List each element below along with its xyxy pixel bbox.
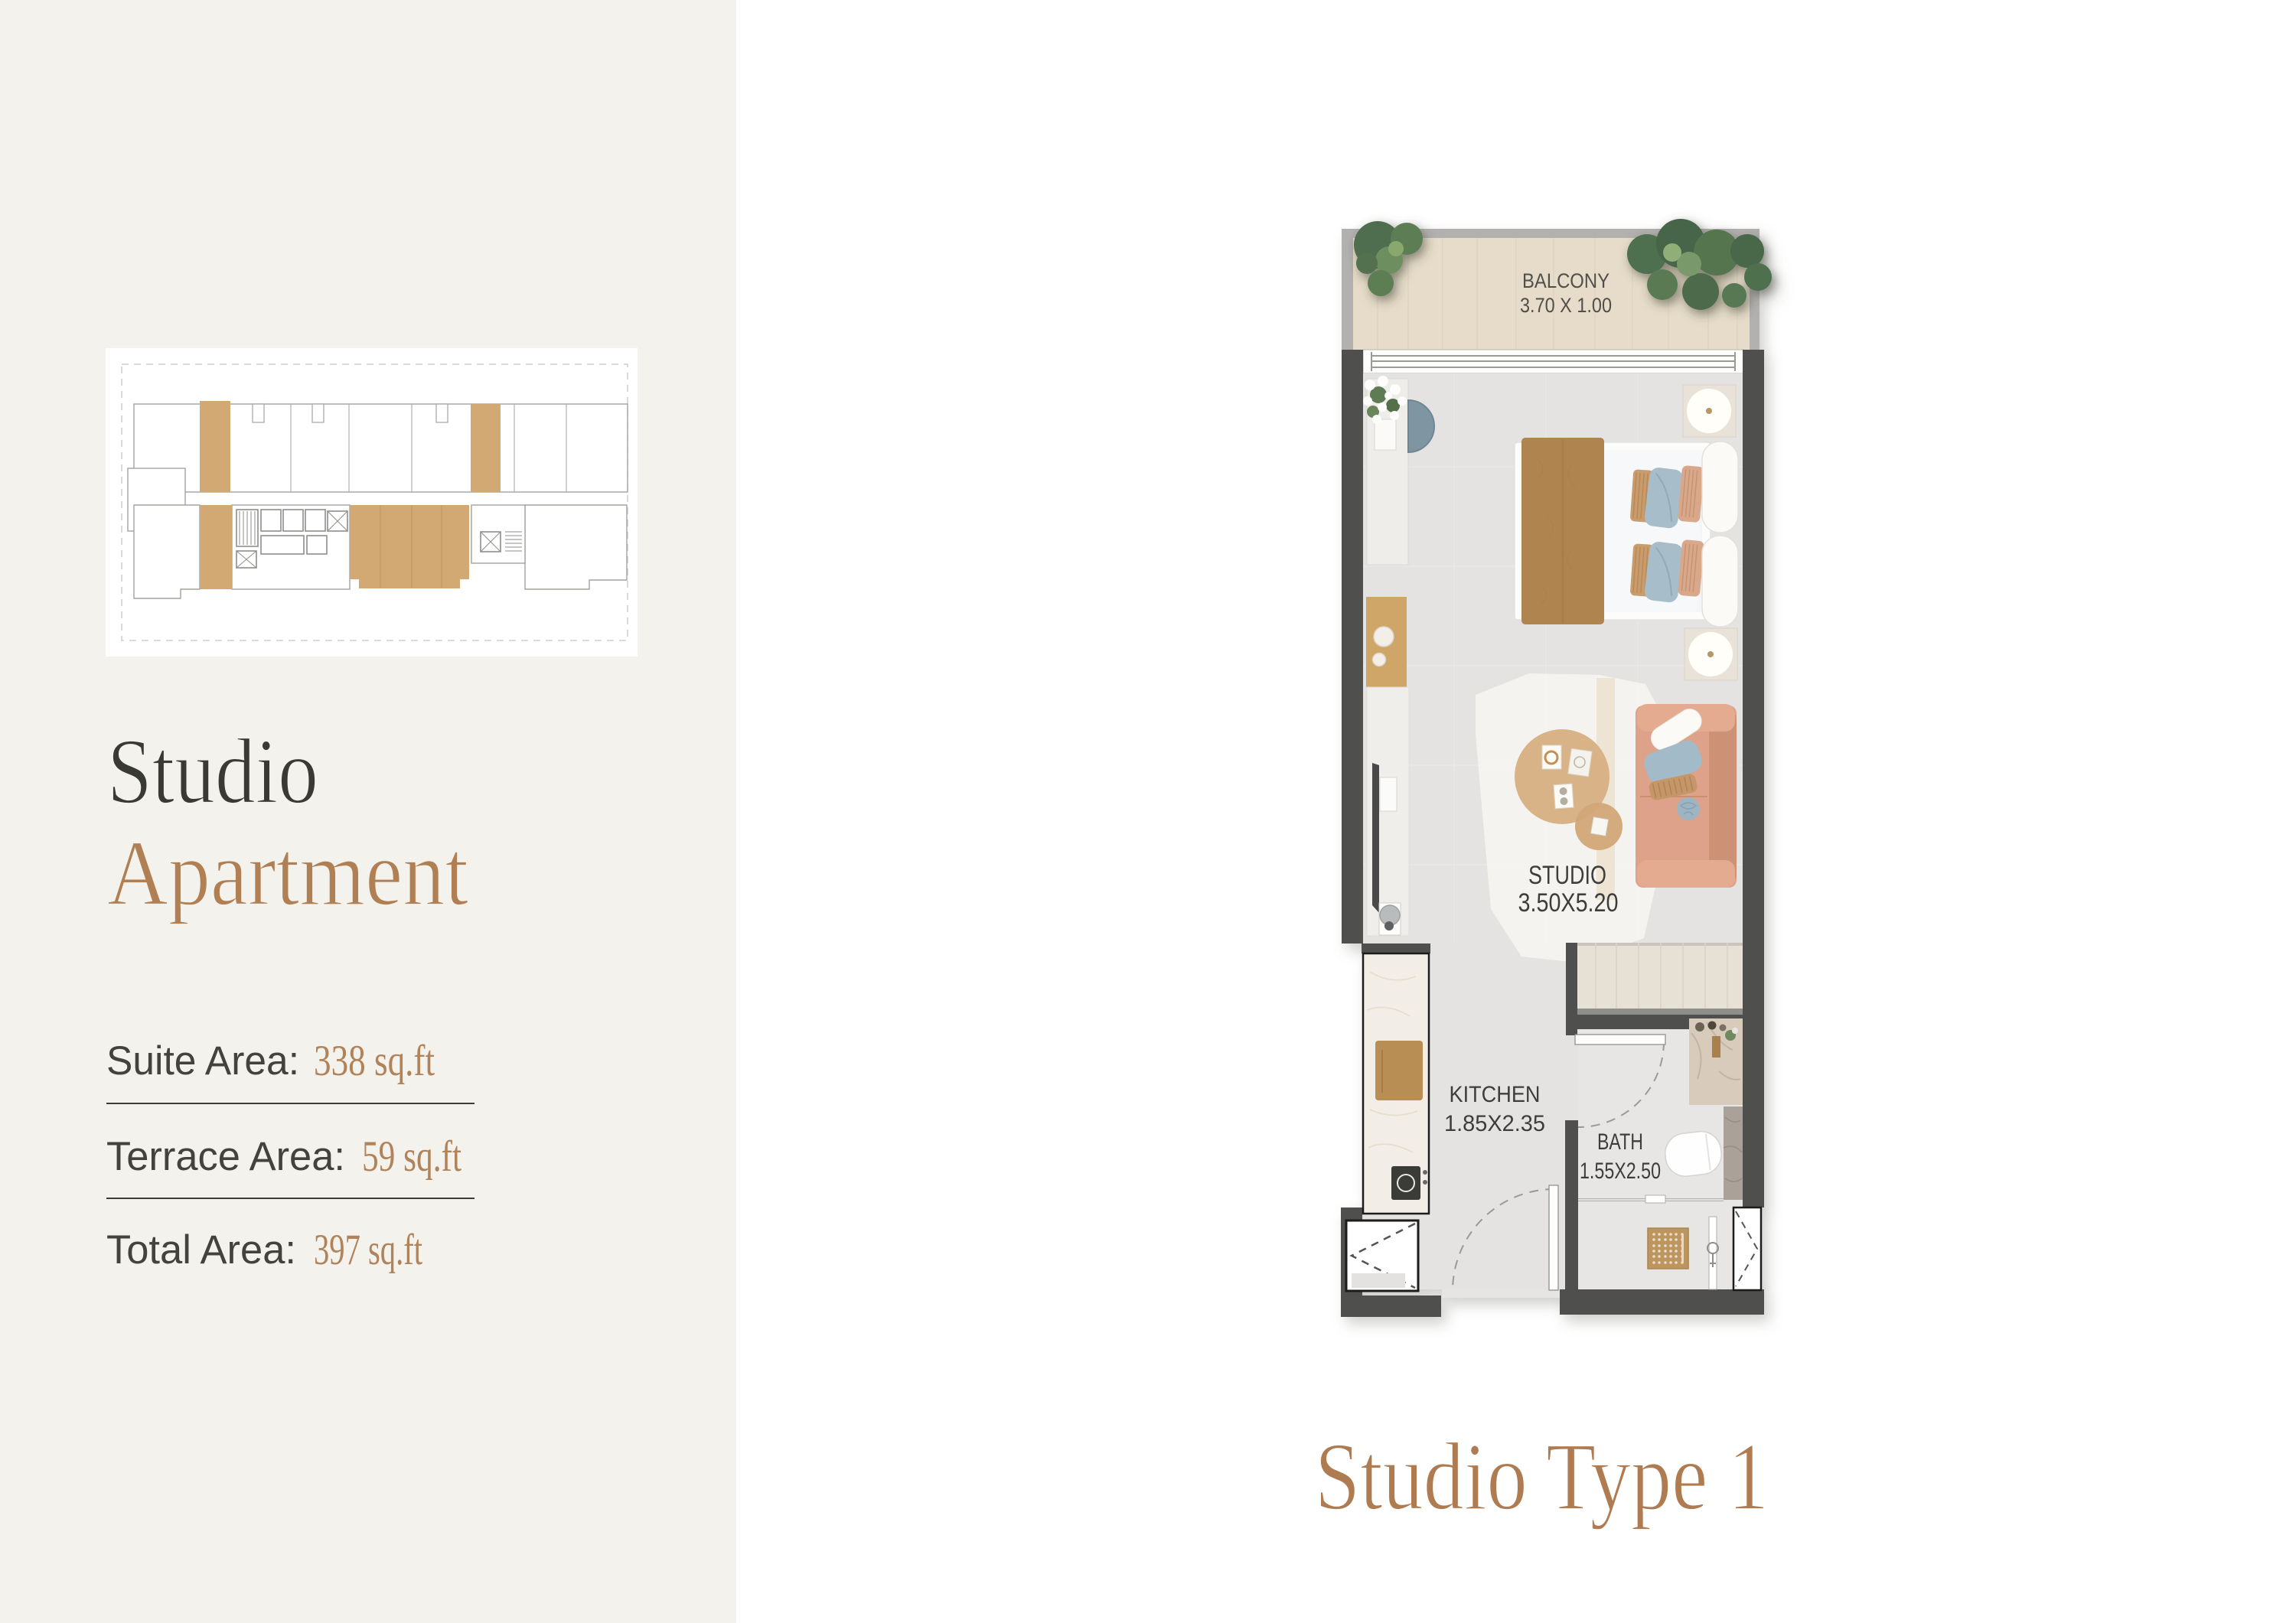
svg-text:BATH: BATH (1597, 1129, 1643, 1155)
svg-text:Terrace Area:: Terrace Area: (106, 1134, 345, 1179)
svg-text:Apartment: Apartment (107, 822, 468, 925)
svg-text:3.50X5.20: 3.50X5.20 (1518, 888, 1619, 917)
svg-text:STUDIO: STUDIO (1528, 861, 1606, 890)
svg-text:Suite Area:: Suite Area: (106, 1038, 299, 1084)
svg-text:Studio: Studio (107, 720, 318, 823)
svg-text:Studio Type 1: Studio Type 1 (1315, 1424, 1769, 1530)
svg-text:KITCHEN: KITCHEN (1450, 1082, 1541, 1107)
svg-text:338 sq.ft: 338 sq.ft (314, 1037, 435, 1085)
svg-text:Total Area:: Total Area: (106, 1227, 296, 1273)
svg-text:397 sq.ft: 397 sq.ft (314, 1226, 422, 1274)
svg-text:BALCONY: BALCONY (1522, 269, 1609, 292)
svg-text:1.85X2.35: 1.85X2.35 (1444, 1111, 1545, 1136)
svg-text:3.70 X 1.00: 3.70 X 1.00 (1520, 294, 1612, 317)
svg-text:59 sq.ft: 59 sq.ft (362, 1133, 461, 1181)
svg-text:1.55X2.50: 1.55X2.50 (1580, 1159, 1661, 1184)
